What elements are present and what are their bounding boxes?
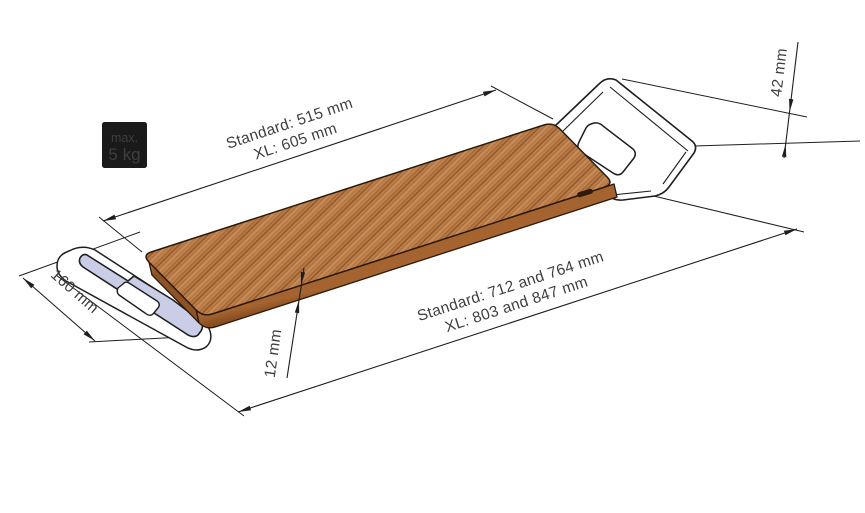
ext-overall-right xyxy=(637,192,804,232)
max-load-badge: max. 5 kg xyxy=(102,122,147,168)
max-load-badge-line2: 5 kg xyxy=(108,145,140,164)
ext-hook-bottom xyxy=(694,141,860,146)
hook-height-label: 42 mm xyxy=(768,47,791,98)
ext-board-length-right xyxy=(491,86,553,119)
arrowhead xyxy=(784,229,797,235)
arrowhead xyxy=(238,406,251,412)
arrowhead xyxy=(782,144,786,157)
technical-drawing-canvas: Standard: 515 mm XL: 605 mm Standard: 71… xyxy=(0,0,865,513)
board-thickness-label: 12 mm xyxy=(262,328,286,379)
arrowhead xyxy=(483,90,496,96)
ext-board-length-left xyxy=(99,217,142,252)
dimension-hook-height: 42 mm xyxy=(768,42,798,158)
arrowhead xyxy=(103,215,116,221)
arrowhead xyxy=(295,300,299,313)
bath-board-dimension-drawing: Standard: 515 mm XL: 605 mm Standard: 71… xyxy=(0,0,865,513)
max-load-badge-line1: max. xyxy=(111,131,138,145)
arrowhead xyxy=(789,99,793,112)
